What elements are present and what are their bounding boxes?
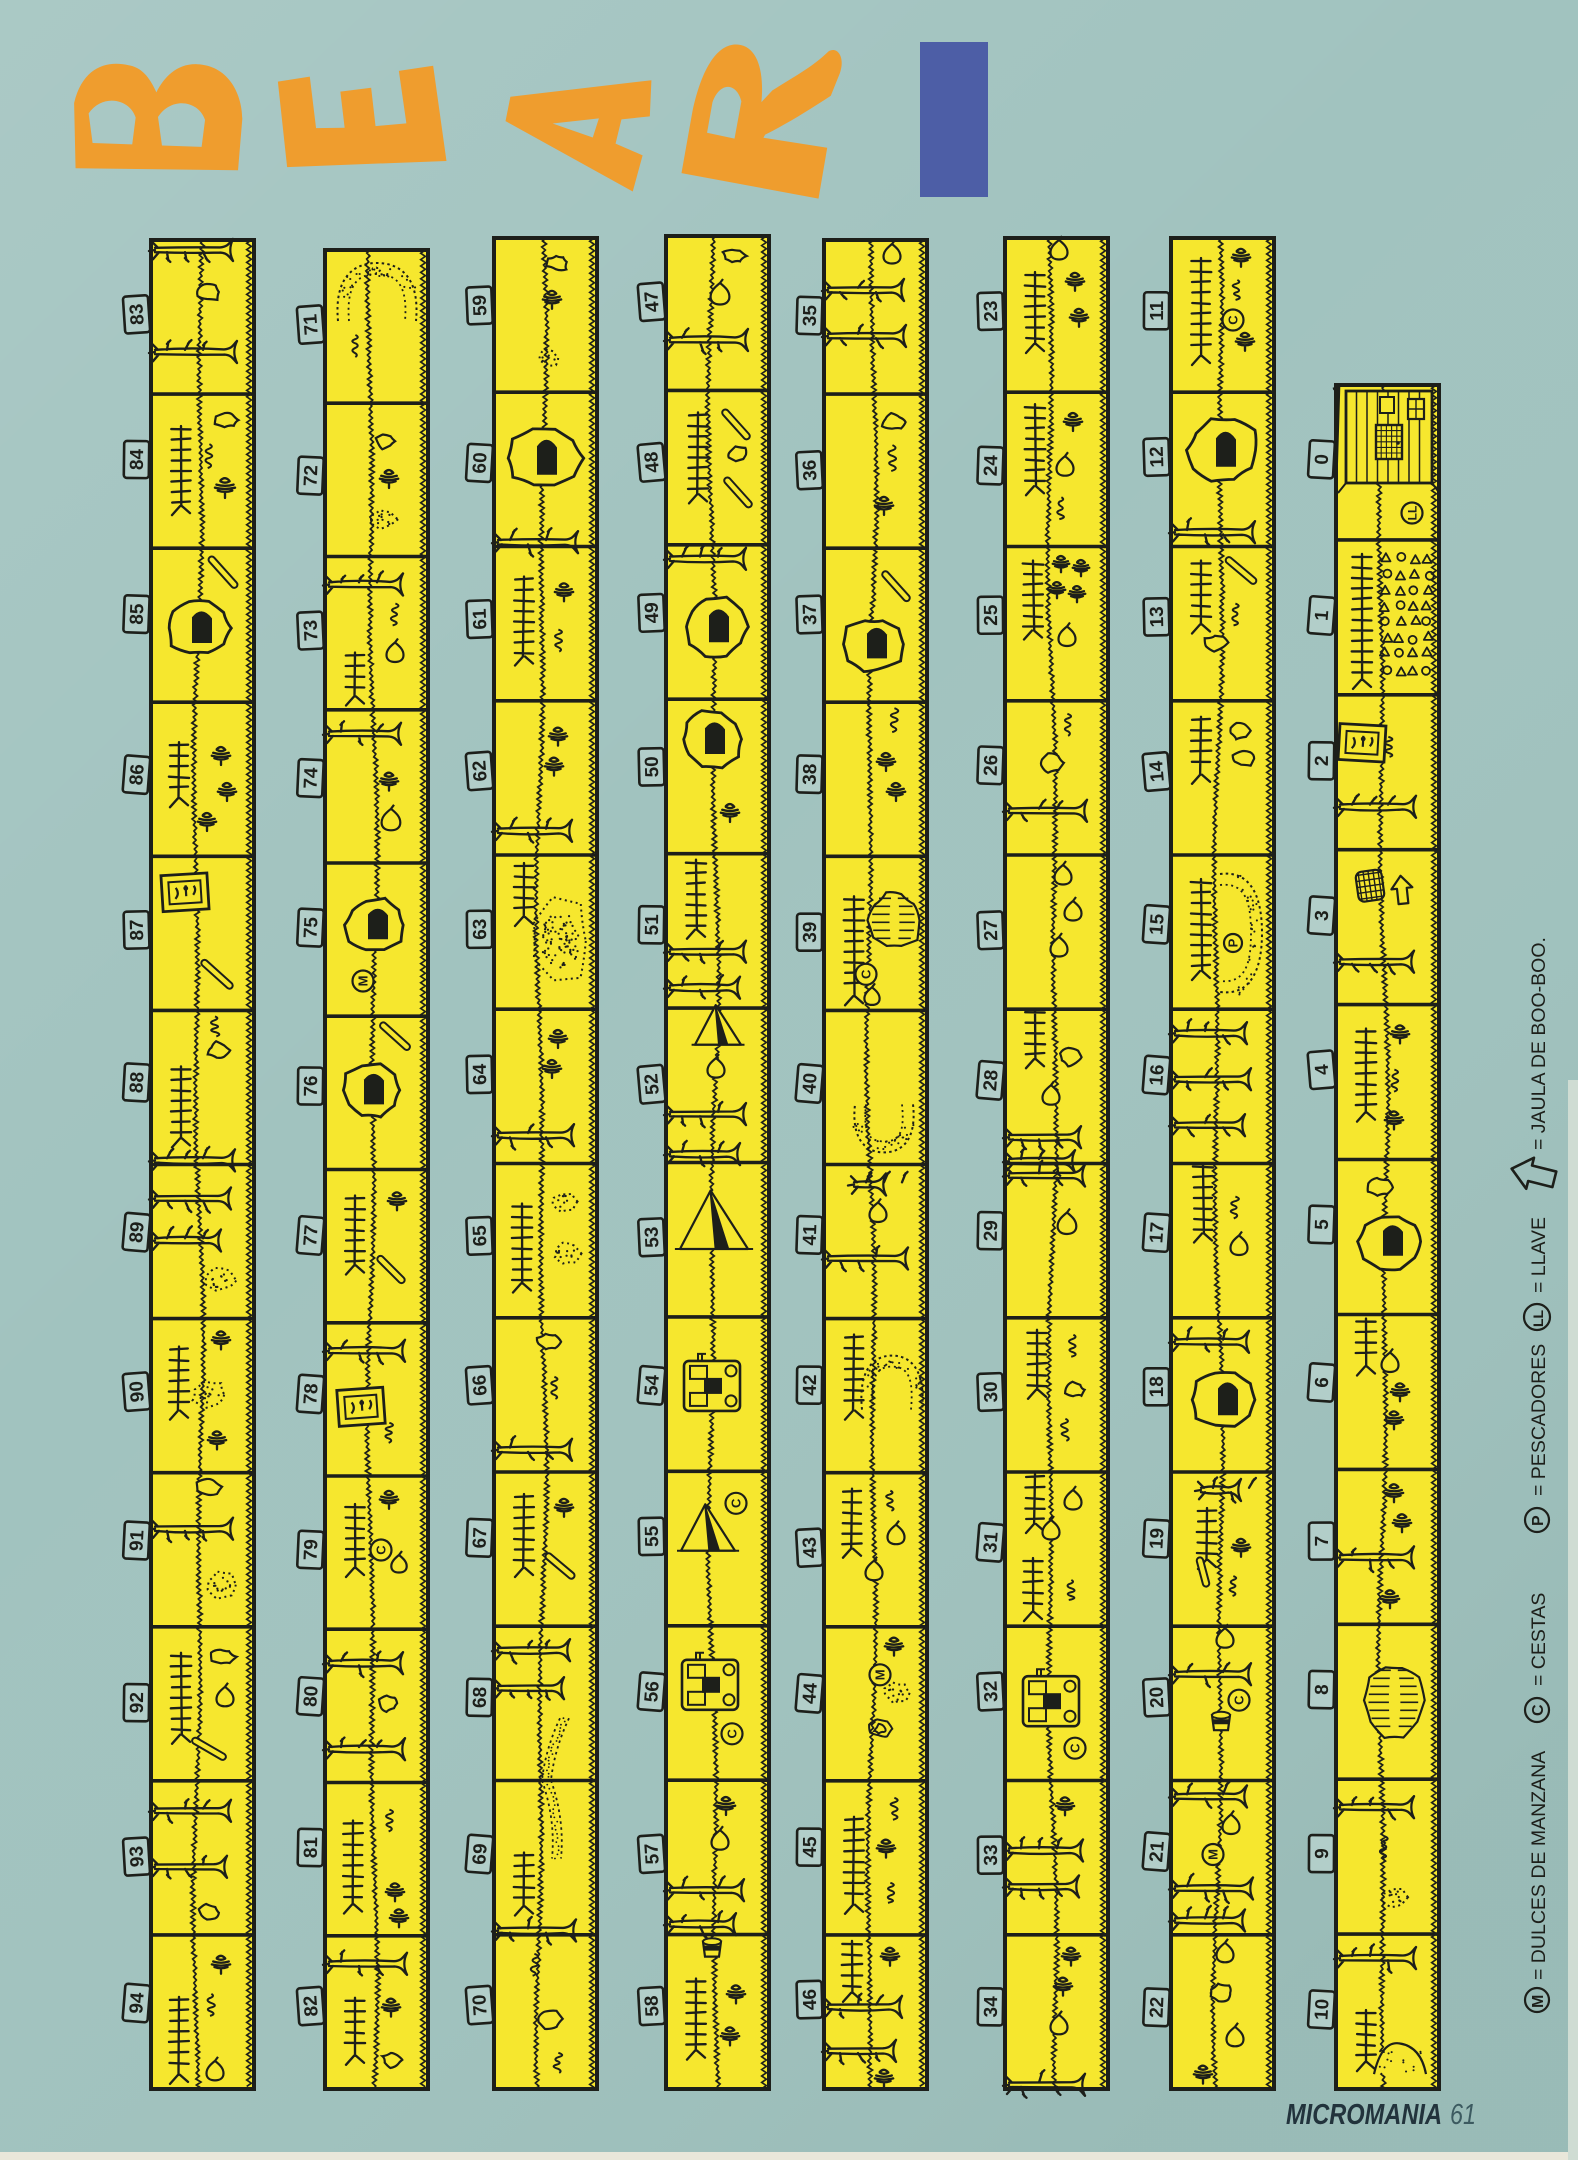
- svg-text:87: 87: [127, 919, 149, 941]
- svg-text:68: 68: [470, 1687, 491, 1709]
- svg-text:= PESCADORES: = PESCADORES: [1528, 1344, 1550, 1496]
- svg-text:74: 74: [301, 767, 323, 789]
- svg-text:MICROMANIA: MICROMANIA: [1286, 2099, 1442, 2131]
- svg-text:32: 32: [981, 1680, 1003, 1702]
- svg-text:43: 43: [799, 1536, 821, 1558]
- svg-text:= CESTAS: = CESTAS: [1528, 1593, 1550, 1686]
- svg-text:8: 8: [1312, 1684, 1333, 1695]
- svg-text:20: 20: [1147, 1686, 1169, 1708]
- svg-text:1: 1: [1312, 609, 1334, 622]
- svg-text:36: 36: [800, 459, 822, 481]
- svg-text:84: 84: [127, 448, 148, 470]
- svg-text:77: 77: [300, 1224, 323, 1247]
- svg-text:30: 30: [981, 1381, 1003, 1403]
- svg-text:49: 49: [642, 602, 664, 624]
- svg-text:85: 85: [127, 603, 149, 625]
- svg-text:LL: LL: [1530, 1309, 1546, 1327]
- svg-text:C: C: [859, 969, 874, 979]
- svg-text:64: 64: [470, 1063, 491, 1085]
- svg-text:80: 80: [300, 1685, 322, 1707]
- svg-text:29: 29: [981, 1220, 1002, 1242]
- svg-text:67: 67: [470, 1527, 492, 1549]
- svg-text:34: 34: [981, 1996, 1002, 2018]
- svg-text:17: 17: [1146, 1221, 1168, 1244]
- svg-text:9: 9: [1312, 1848, 1333, 1859]
- svg-text:26: 26: [981, 754, 1003, 776]
- svg-text:M: M: [1530, 1995, 1547, 2008]
- svg-text:6: 6: [1312, 1376, 1334, 1388]
- svg-text:15: 15: [1146, 913, 1168, 936]
- svg-text:40: 40: [799, 1072, 822, 1095]
- svg-text:73: 73: [301, 619, 323, 641]
- svg-text:C: C: [1530, 1704, 1547, 1716]
- svg-text:75: 75: [300, 916, 322, 939]
- svg-text:90: 90: [126, 1380, 149, 1403]
- svg-text:2: 2: [1312, 755, 1333, 766]
- svg-text:79: 79: [301, 1539, 323, 1561]
- svg-text:P: P: [1226, 938, 1241, 947]
- svg-text:C: C: [1068, 1743, 1083, 1753]
- svg-text:46: 46: [800, 1989, 822, 2011]
- svg-text:56: 56: [641, 1680, 664, 1703]
- svg-text:31: 31: [980, 1531, 1003, 1554]
- svg-text:92: 92: [127, 1692, 148, 1713]
- svg-text:45: 45: [800, 1836, 821, 1858]
- svg-text:33: 33: [981, 1844, 1002, 1865]
- svg-text:0: 0: [1312, 454, 1334, 466]
- svg-text:C: C: [1232, 1695, 1247, 1705]
- svg-text:28: 28: [980, 1069, 1003, 1092]
- svg-text:89: 89: [126, 1221, 149, 1244]
- svg-text:76: 76: [301, 1075, 322, 1096]
- svg-text:78: 78: [300, 1383, 322, 1406]
- svg-text:5: 5: [1312, 1218, 1333, 1230]
- svg-text:69: 69: [469, 1843, 492, 1866]
- svg-text:93: 93: [126, 1845, 148, 1867]
- svg-text:M: M: [356, 976, 371, 987]
- svg-text:82: 82: [300, 1995, 322, 2018]
- svg-text:7: 7: [1312, 1536, 1333, 1547]
- svg-text:72: 72: [301, 465, 323, 487]
- svg-text:C: C: [1226, 315, 1241, 325]
- svg-text:71: 71: [300, 313, 322, 336]
- svg-text:C: C: [725, 1728, 740, 1738]
- svg-text:22: 22: [1147, 1996, 1169, 2018]
- svg-text:60: 60: [469, 452, 491, 474]
- svg-text:91: 91: [126, 1529, 148, 1552]
- svg-text:57: 57: [641, 1843, 663, 1865]
- svg-text:27: 27: [981, 919, 1003, 941]
- svg-text:66: 66: [469, 1374, 491, 1397]
- svg-text:63: 63: [470, 919, 491, 940]
- svg-text:4: 4: [1312, 1063, 1334, 1076]
- svg-text:LL: LL: [1405, 506, 1419, 521]
- svg-text:52: 52: [641, 1073, 664, 1096]
- svg-text:10: 10: [1311, 1998, 1333, 2020]
- svg-text:16: 16: [1146, 1064, 1169, 1087]
- svg-text:11: 11: [1147, 300, 1168, 321]
- svg-text:44: 44: [799, 1682, 822, 1705]
- svg-text:65: 65: [470, 1224, 492, 1246]
- svg-text:C: C: [729, 1498, 744, 1508]
- svg-text:83: 83: [126, 303, 148, 325]
- svg-text:21: 21: [1146, 1840, 1169, 1863]
- svg-text:55: 55: [642, 1525, 663, 1547]
- svg-text:23: 23: [981, 300, 1003, 322]
- svg-text:12: 12: [1147, 446, 1169, 468]
- svg-text:25: 25: [981, 604, 1002, 626]
- svg-text:= LLAVE: = LLAVE: [1528, 1217, 1550, 1293]
- svg-text:70: 70: [469, 1994, 492, 2017]
- svg-text:53: 53: [642, 1226, 664, 1248]
- svg-text:51: 51: [642, 914, 663, 936]
- svg-text:59: 59: [470, 294, 492, 316]
- svg-text:61: 61: [1450, 2099, 1476, 2131]
- svg-text:14: 14: [1146, 760, 1169, 783]
- svg-text:81: 81: [301, 1836, 322, 1858]
- svg-text:54: 54: [641, 1374, 664, 1397]
- svg-text:41: 41: [800, 1224, 822, 1246]
- svg-text:37: 37: [800, 604, 822, 626]
- svg-text:42: 42: [800, 1374, 821, 1395]
- svg-text:13: 13: [1147, 606, 1168, 628]
- svg-text:= JAULA DE BOO-BOO.: = JAULA DE BOO-BOO.: [1528, 937, 1550, 1150]
- svg-text:24: 24: [981, 454, 1003, 476]
- svg-text:M: M: [873, 1669, 888, 1680]
- svg-text:= DULCES DE MANZANA: = DULCES DE MANZANA: [1528, 1751, 1550, 1980]
- svg-text:35: 35: [800, 304, 822, 326]
- svg-text:39: 39: [800, 922, 821, 943]
- svg-text:3: 3: [1312, 910, 1334, 922]
- svg-text:48: 48: [641, 451, 664, 474]
- svg-text:88: 88: [126, 1071, 148, 1093]
- svg-text:M: M: [1206, 1849, 1221, 1860]
- svg-text:19: 19: [1146, 1527, 1168, 1549]
- svg-text:47: 47: [641, 290, 664, 313]
- svg-text:38: 38: [800, 763, 822, 785]
- svg-text:61: 61: [470, 608, 492, 630]
- svg-text:94: 94: [126, 1991, 149, 2014]
- svg-text:86: 86: [126, 763, 149, 786]
- svg-text:18: 18: [1147, 1376, 1168, 1397]
- svg-text:58: 58: [641, 1995, 663, 2017]
- svg-text:C: C: [374, 1545, 389, 1555]
- svg-text:62: 62: [469, 760, 492, 783]
- svg-text:P: P: [1530, 1515, 1547, 1526]
- svg-text:50: 50: [642, 756, 663, 778]
